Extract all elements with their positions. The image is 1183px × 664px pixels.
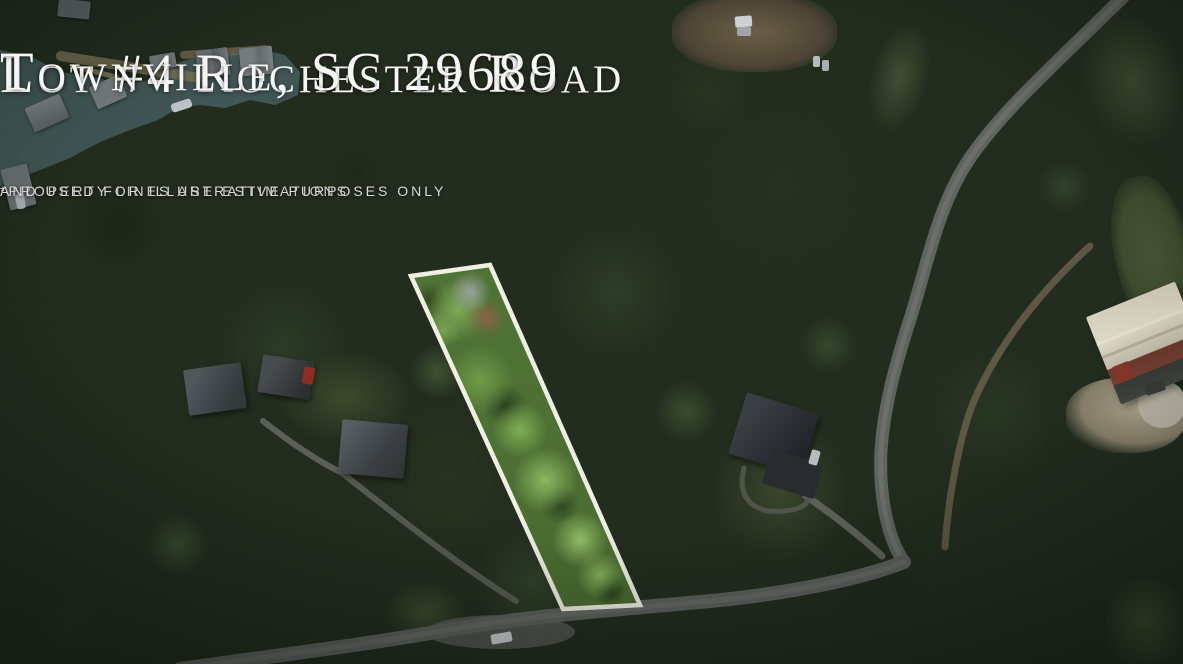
property-boundary-outline [411,265,640,609]
aerial-listing-photo: Lot #4 Rochester Road Townville, SC 2968… [0,0,1183,664]
disclaimer-line: AND USED FOR ILLUSTRATIVE PURPOSES ONLY [0,182,446,200]
city-state-zip-line: Townville, SC 29689 [0,48,561,96]
